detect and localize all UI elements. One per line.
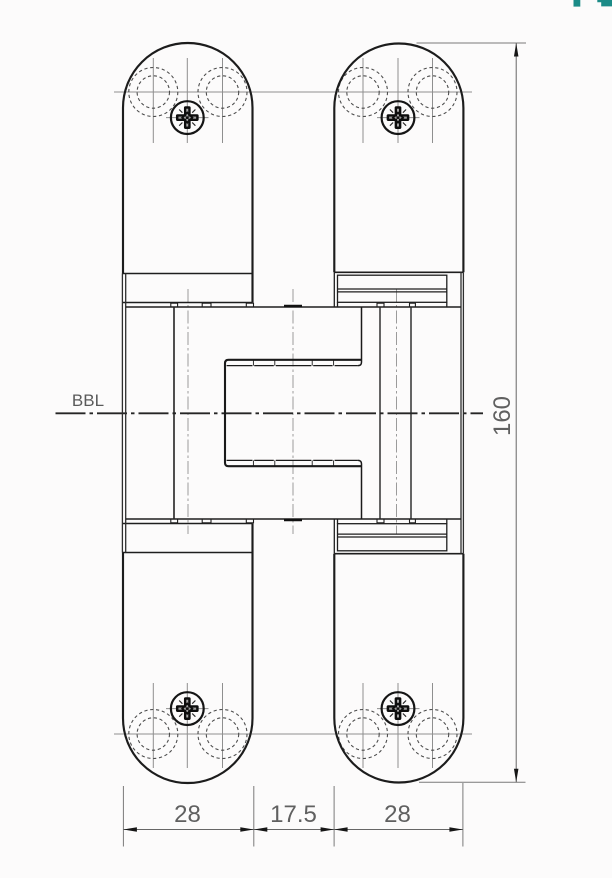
svg-text:160: 160 [489, 396, 516, 436]
svg-text:28: 28 [384, 801, 411, 828]
svg-text:28: 28 [174, 801, 201, 828]
svg-text:17.5: 17.5 [270, 801, 317, 828]
svg-text:BBL: BBL [72, 391, 104, 410]
